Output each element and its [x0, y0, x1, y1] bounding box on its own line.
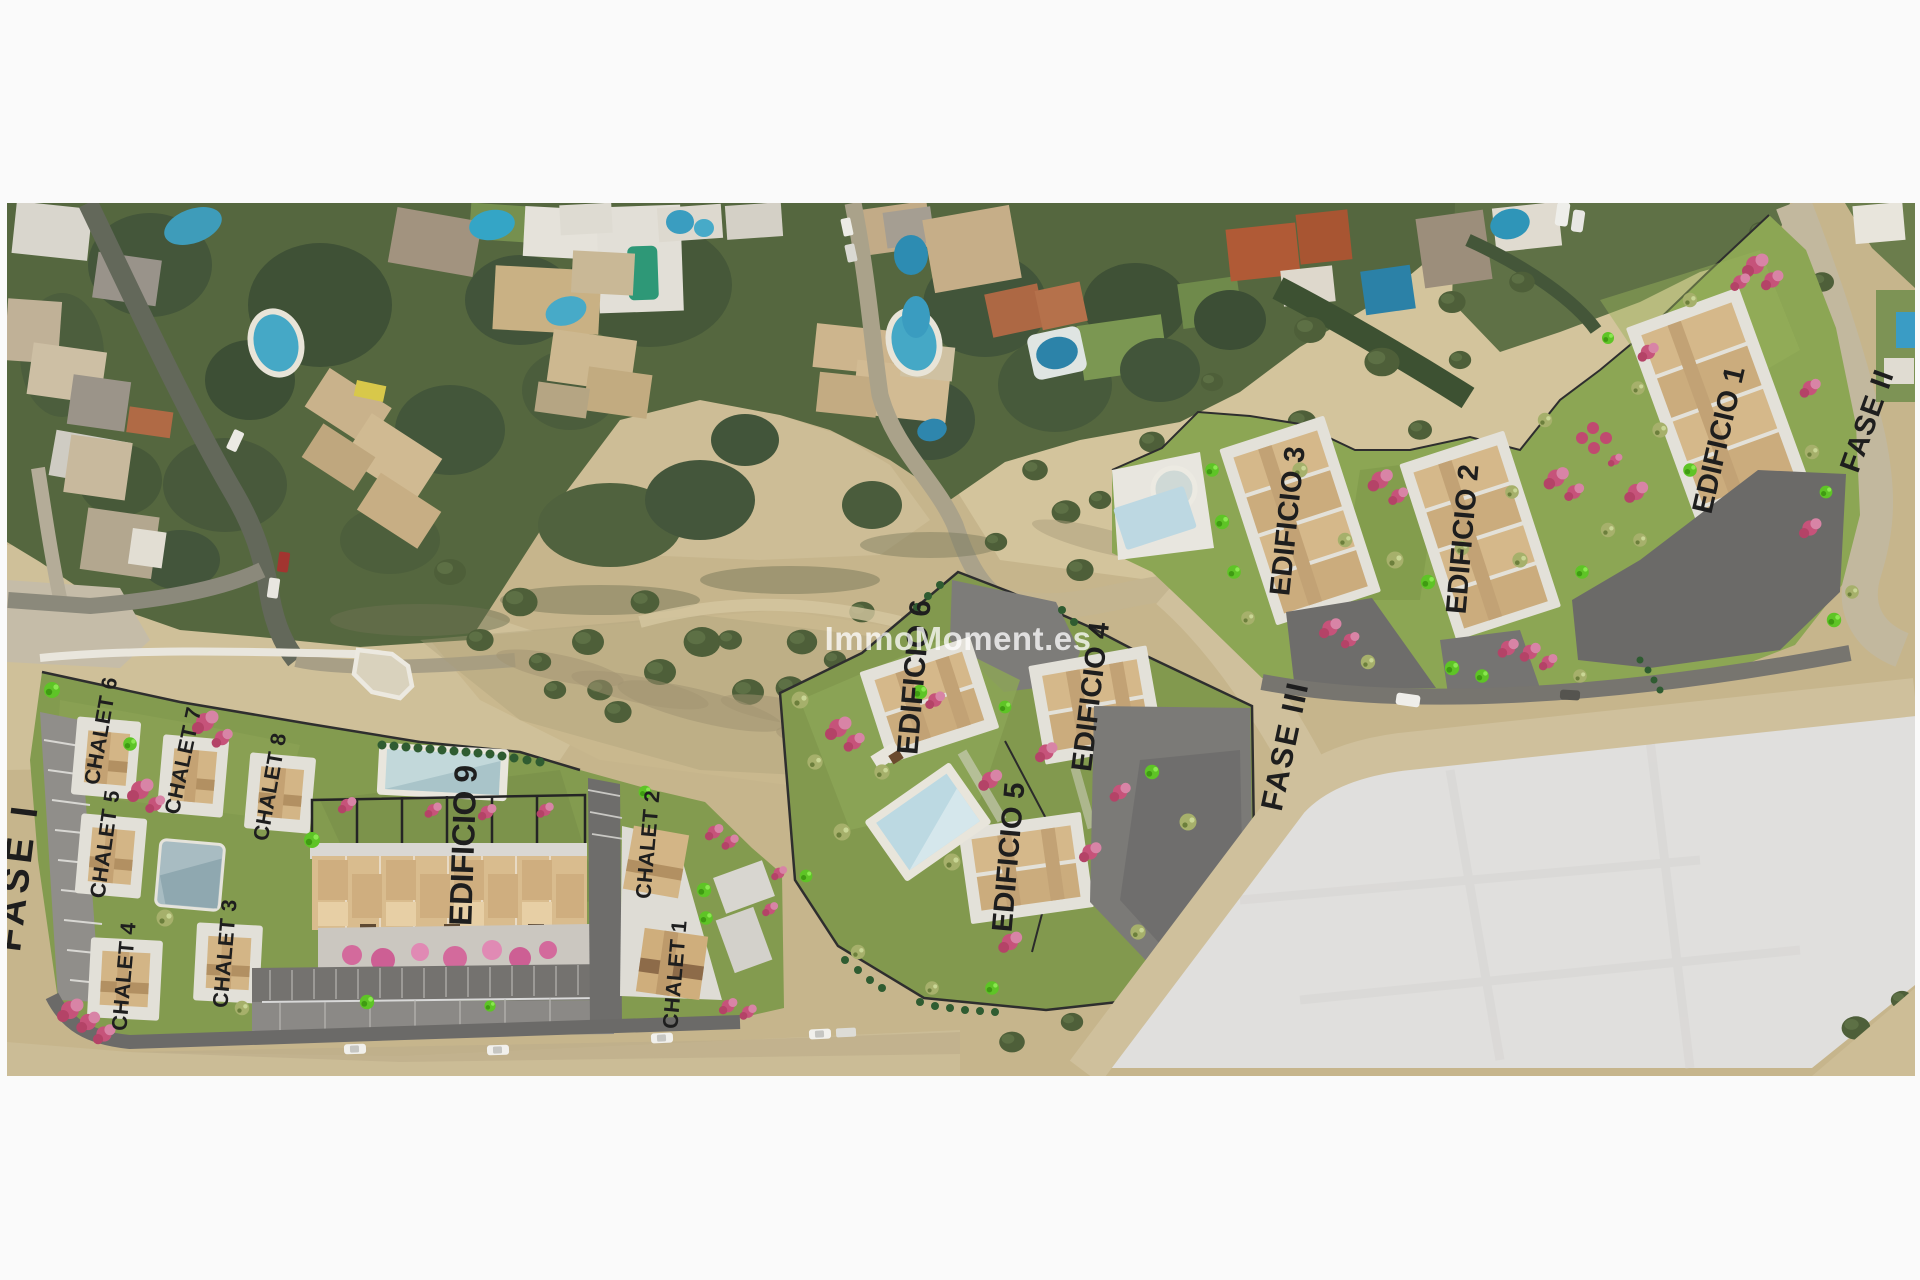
svg-text:ImmoMoment.es: ImmoMoment.es — [825, 620, 1092, 657]
svg-text:EDIFICIO 9: EDIFICIO 9 — [442, 765, 484, 927]
